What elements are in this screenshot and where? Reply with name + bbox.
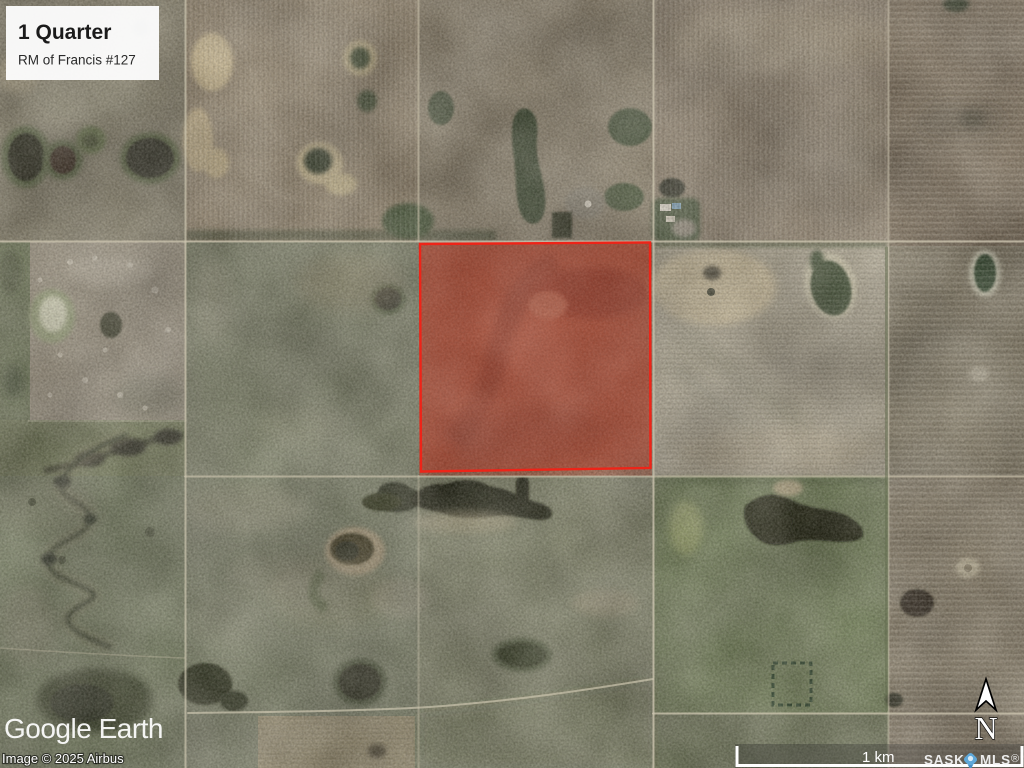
svg-text:SASK: SASK <box>924 753 965 768</box>
svg-text:RM of Francis #127: RM of Francis #127 <box>18 53 136 68</box>
svg-text:1 Quarter: 1 Quarter <box>18 21 111 44</box>
svg-text:MLS: MLS <box>980 753 1011 768</box>
svg-text:Google Earth: Google Earth <box>4 713 163 744</box>
svg-text:N: N <box>974 710 997 746</box>
svg-text:®: ® <box>1011 753 1019 765</box>
svg-text:Image © 2025 Airbus: Image © 2025 Airbus <box>2 751 124 766</box>
svg-text:1 km: 1 km <box>862 749 895 766</box>
